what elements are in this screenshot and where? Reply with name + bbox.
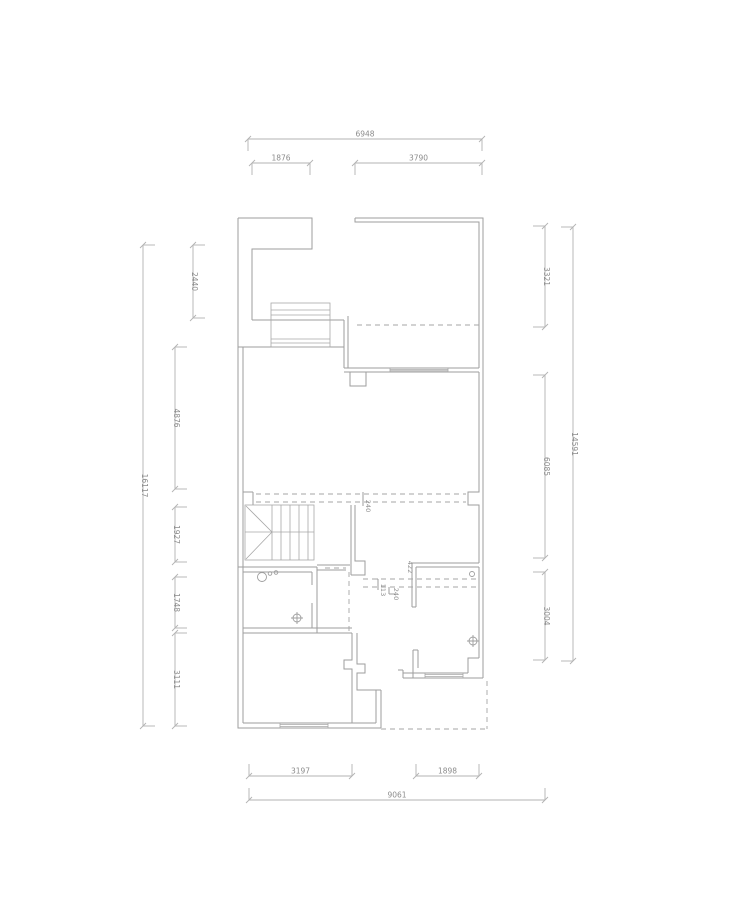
dimension-label: 3321 <box>542 267 551 286</box>
dimension-label: 1748 <box>172 593 181 612</box>
fixtures <box>258 571 480 647</box>
dimension-label: 113 <box>379 584 387 596</box>
walls <box>238 218 483 728</box>
dimension-label: 240 <box>392 588 400 600</box>
floor-plan-svg: 6948187637901611724404876192717483111332… <box>0 0 740 900</box>
dimension-label: 3004 <box>542 606 551 625</box>
dimension-label: 6948 <box>355 130 374 139</box>
dimension-label: 3111 <box>172 670 181 689</box>
floor-plan-canvas: 6948187637901611724404876192717483111332… <box>0 0 740 900</box>
dimension-label: 3790 <box>409 154 428 163</box>
dashed-lines <box>256 325 487 729</box>
sink-icon <box>258 573 267 582</box>
dimension-label: 6085 <box>542 457 551 476</box>
dimension-label: 4876 <box>172 408 181 427</box>
dimension-label: 2440 <box>190 272 199 291</box>
hinge-icon <box>470 572 475 577</box>
dimension-label: 3197 <box>291 767 310 776</box>
dimension-label: 422 <box>406 561 414 573</box>
dimension-annotations: 6948187637901611724404876192717483111332… <box>140 130 579 804</box>
dimension-label: 240 <box>364 500 372 512</box>
dimension-label: 1898 <box>438 767 457 776</box>
dimension-label: 1927 <box>172 525 181 544</box>
staircase <box>245 505 314 560</box>
floor-drain-icon <box>291 612 303 624</box>
dimension-label: 9061 <box>387 791 406 800</box>
floor-drain-icon <box>467 635 479 647</box>
dimension-label: 16117 <box>140 474 149 498</box>
cabinet <box>271 303 330 347</box>
dimension-label: 14591 <box>570 432 579 456</box>
windows <box>280 368 463 728</box>
dimension-label: 1876 <box>271 154 290 163</box>
